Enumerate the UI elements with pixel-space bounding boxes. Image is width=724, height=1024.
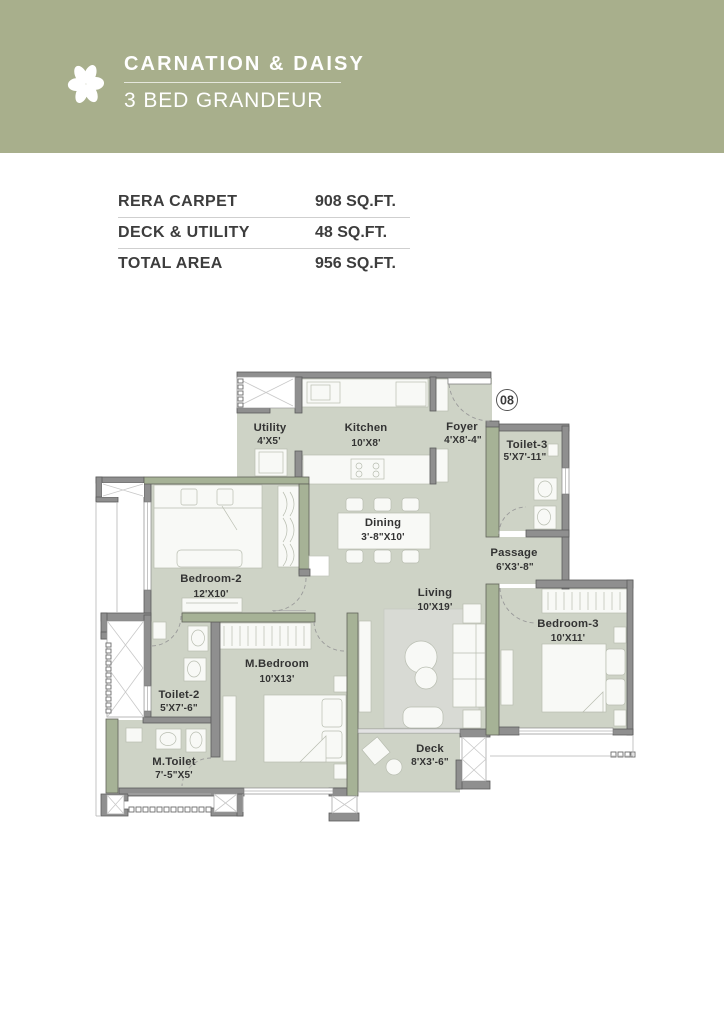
svg-text:12'X10': 12'X10' [193,589,228,600]
svg-text:Bedroom-2: Bedroom-2 [180,573,241,585]
svg-text:5'X7'-6": 5'X7'-6" [160,703,198,714]
svg-text:Bedroom-3: Bedroom-3 [537,618,598,630]
svg-text:08: 08 [500,394,514,408]
svg-text:Deck: Deck [416,743,444,755]
svg-text:7'-5"X5': 7'-5"X5' [155,770,193,781]
svg-text:4'X5': 4'X5' [257,436,281,447]
svg-text:M.Toilet: M.Toilet [152,756,195,768]
svg-text:Foyer: Foyer [446,421,478,433]
svg-text:8'X3'-6": 8'X3'-6" [411,757,449,768]
svg-text:10'X8': 10'X8' [351,438,380,449]
svg-text:10'X13': 10'X13' [259,674,294,685]
svg-text:5'X7'-11": 5'X7'-11" [504,452,547,463]
svg-text:Kitchen: Kitchen [345,422,388,434]
svg-text:10'X11': 10'X11' [551,633,586,644]
svg-text:4'X8'-4": 4'X8'-4" [444,435,482,446]
svg-text:Toilet-2: Toilet-2 [159,689,200,701]
svg-text:Toilet-3: Toilet-3 [507,439,548,451]
svg-text:Living: Living [418,587,452,599]
svg-text:10'X19': 10'X19' [417,602,452,613]
svg-text:Utility: Utility [254,422,287,434]
svg-text:6'X3'-8": 6'X3'-8" [496,562,534,573]
svg-text:M.Bedroom: M.Bedroom [245,658,309,670]
svg-text:Dining: Dining [365,517,401,529]
svg-text:3'-8"X10': 3'-8"X10' [361,532,405,543]
svg-text:Passage: Passage [490,547,537,559]
